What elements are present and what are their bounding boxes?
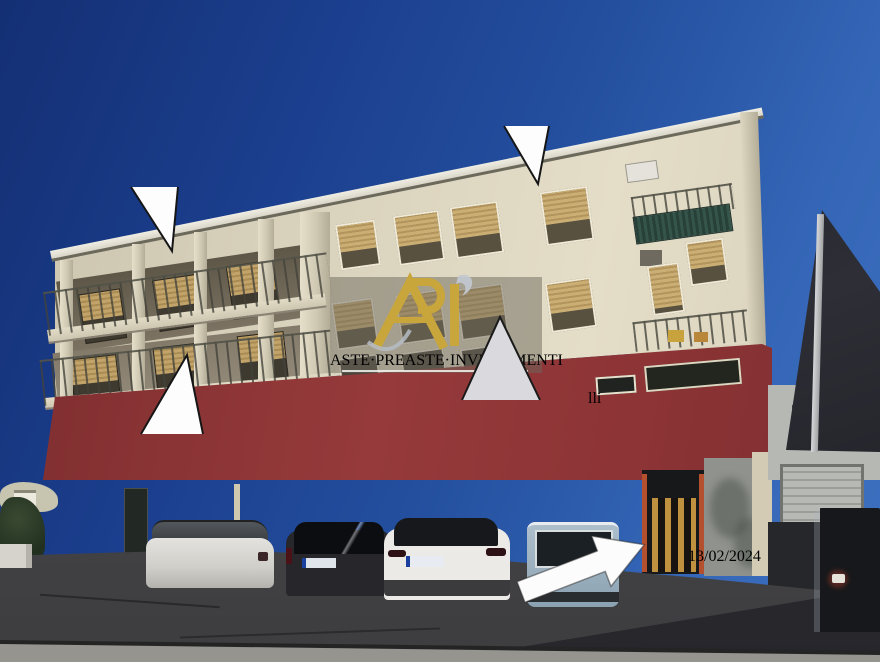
car-evoque [384,514,510,606]
balcony-clutter [640,250,662,266]
window [647,262,686,316]
window [545,277,598,333]
auction-photo: lli [0,0,880,662]
car-tcross [146,520,274,594]
window [335,219,381,270]
window [539,186,594,246]
car-hatchback [286,520,392,600]
sign-remnant-letters: lli [588,390,601,408]
slit-window [595,375,636,396]
callout-lotto3-tail [450,312,552,404]
balcony-box [694,332,708,342]
storefront-shutter [54,486,104,556]
mezzanine-window [60,398,116,452]
car-suv-dark [814,508,880,632]
balcony-box [668,330,684,342]
callout-lotto6-tail [495,122,557,188]
arrow-right-icon [505,528,665,612]
window [450,201,505,259]
date-stamp: 13/02/2024 [688,548,761,566]
callout-lotto1-tail [135,350,209,438]
planter [0,544,32,568]
window [685,238,729,287]
callout-lotto4-tail [120,182,190,258]
window [393,210,446,266]
